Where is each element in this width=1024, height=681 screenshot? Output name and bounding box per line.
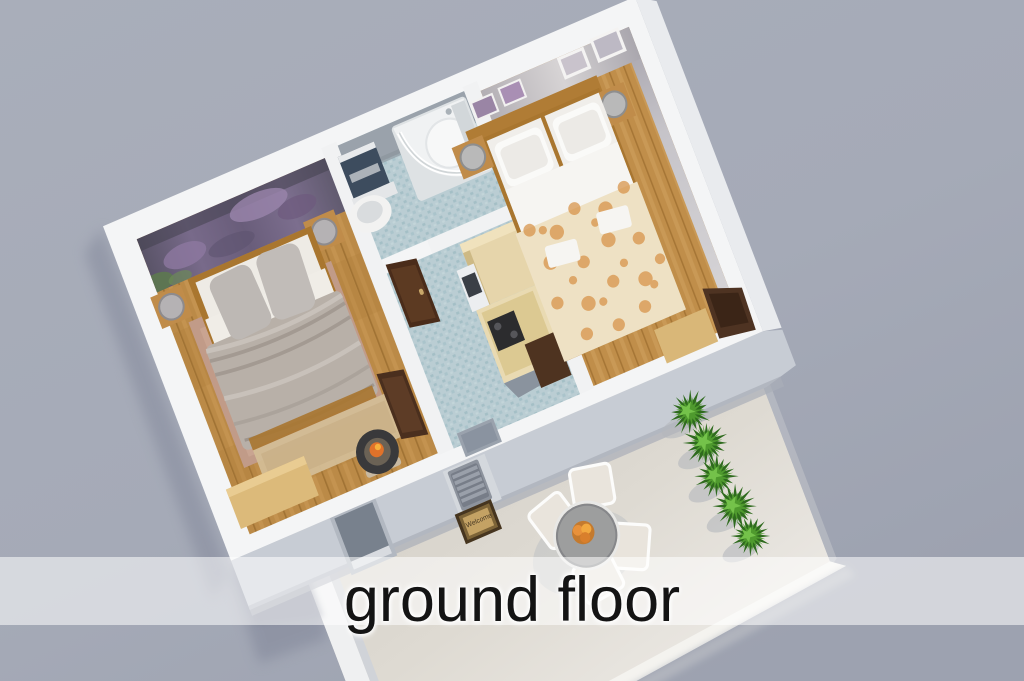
svg-text:ground floor: ground floor	[344, 565, 680, 635]
